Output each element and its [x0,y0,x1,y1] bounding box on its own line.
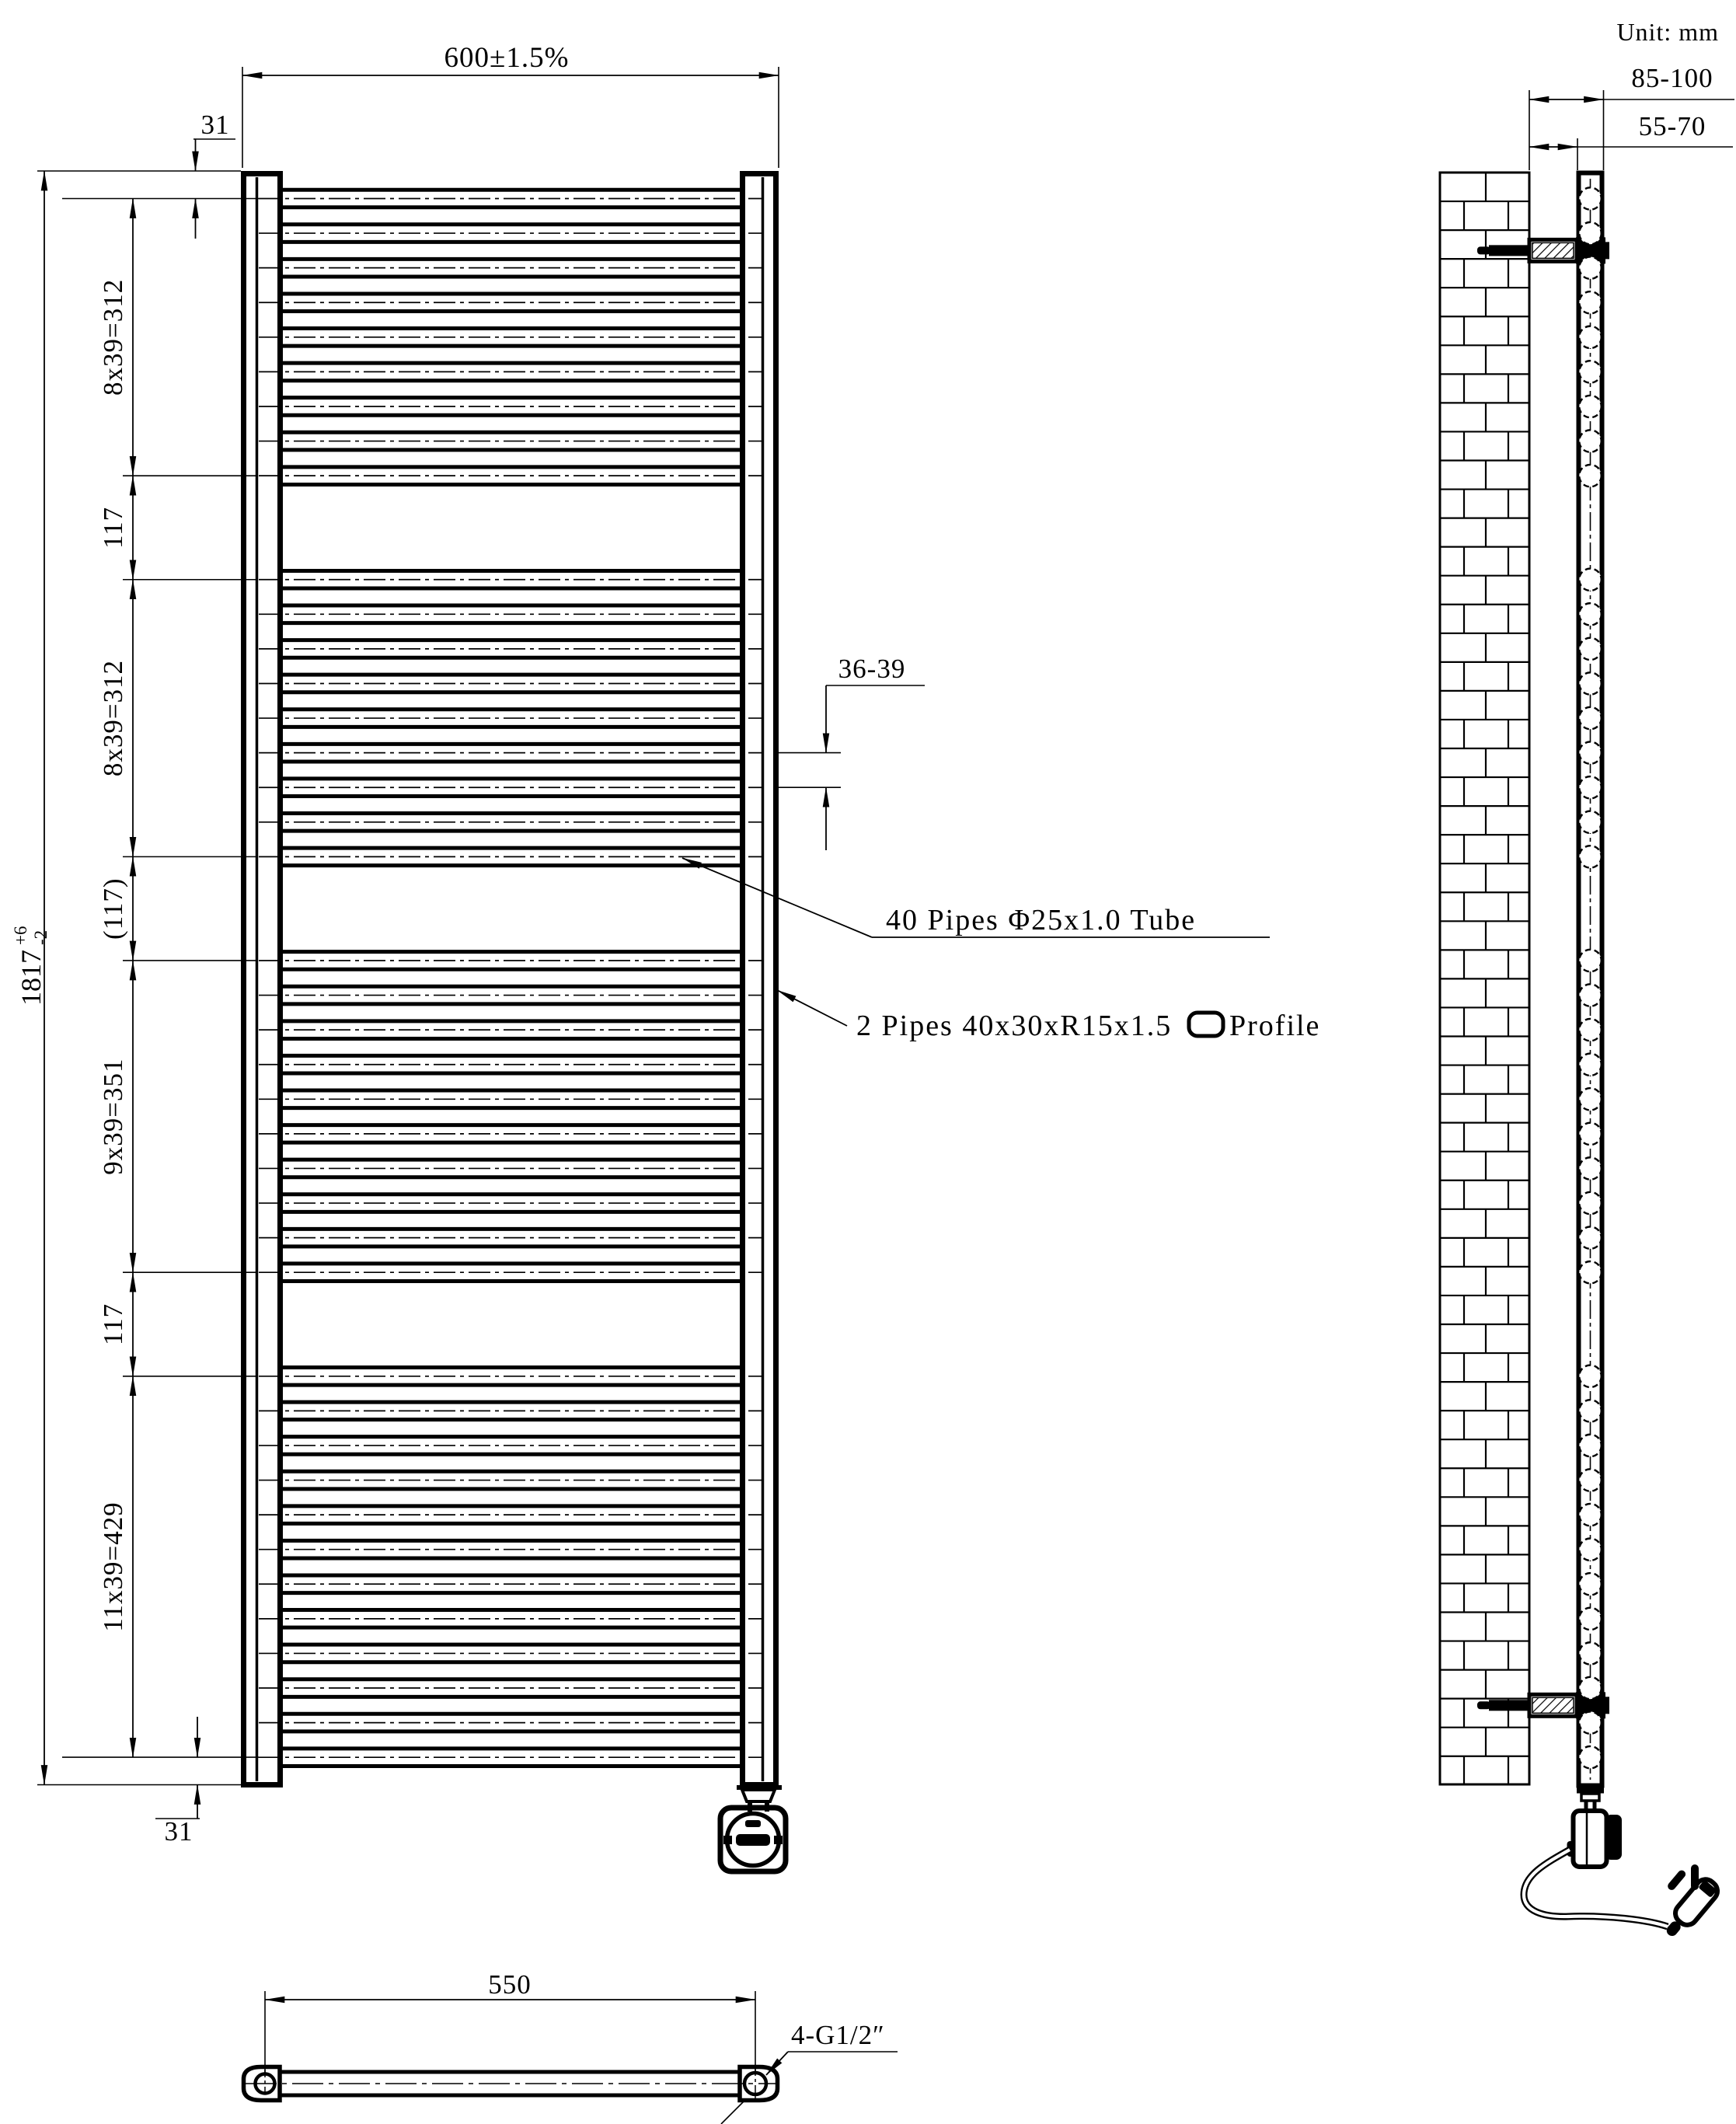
pipe-section-circle [1579,291,1601,313]
overall-height-sup: +6 [11,926,30,945]
tube-note-label: 40 Pipes Φ25x1.0 Tube [886,904,1196,936]
towel-radiator-technical-drawing: 600±1.5% 31 31 1817 +6 -2 [0,0,1736,2124]
power-plug [1661,1864,1722,1942]
wall-anchor [1489,245,1531,256]
hole-spacing-label: 550 [488,1969,532,2000]
pipe-section-circle [1579,1608,1601,1630]
pipe-section-circle [1579,1504,1601,1526]
heating-element-box [720,1787,786,1871]
chain-dim-label: 9x39=351 [98,1058,128,1174]
bottom-offset-label: 31 [165,1816,193,1847]
chain-dim-label: (117) [98,877,128,940]
side-view: 85-100 55-70 [1440,63,1734,1942]
chain-dim-label: 8x39=312 [98,279,128,396]
pipe-section-circle [1579,1123,1601,1145]
pipe-section-circle [1579,326,1601,348]
dim-pipe-pitch: 36-39 [777,654,925,850]
dim-wall-gap: 55-70 [1529,111,1733,170]
profile-note-label: 2 Pipes 40x30xR15x1.5 [856,1010,1172,1042]
socket-tab-left [723,1836,732,1844]
thread-annotation: 4-G1/2″ [721,2020,898,2124]
profile-shape-icon [1189,1013,1223,1036]
wall-gap-label: 55-70 [1639,111,1706,141]
pipe-section-circle [1579,1469,1601,1491]
bracket-screw-hatch [1532,242,1574,258]
chain-dim-label: 11x39=429 [98,1501,128,1631]
pipe-section-circle [1579,1157,1601,1179]
pipe-section-circle [1579,1539,1601,1561]
chain-dim-label: 117 [98,1303,128,1345]
dim-top-offset: 31 [37,110,259,239]
dim-hole-spacing: 550 [265,1969,755,2073]
bracket-screw-hatch [1532,1697,1574,1713]
pipe-section-circle [1579,430,1601,452]
pipe-section-circle [1579,1019,1601,1041]
socket-slot [736,1834,770,1846]
pipe-section-circle [1579,1746,1601,1768]
dim-bottom-offset: 31 [37,1717,259,1847]
pipe-section-circle [1579,638,1601,660]
pipe-section-circle [1579,1711,1601,1733]
pipe-section-circle [1579,396,1601,417]
pipe-section-circle [1579,1400,1601,1421]
profile-annotation: 2 Pipes 40x30xR15x1.5 Profile [777,990,1320,1042]
heater-body [1574,1811,1607,1867]
pipe-section-circle [1579,1435,1601,1456]
overall-height-label: 1817 [16,950,47,1006]
pipe-section-circle [1579,465,1601,487]
pipe-section-circle [1579,222,1601,244]
pitch-dim-label: 36-39 [838,654,906,684]
thread-label: 4-G1/2″ [791,2020,885,2050]
segment-dimension-chain: 8x39=3121178x39=312(117)9x39=35111711x39… [98,199,258,1758]
overall-height-sub: -2 [31,930,51,945]
pipe-section-circle [1579,1192,1601,1214]
anchor-tip [1477,246,1490,254]
heater-side-block [1605,1815,1622,1860]
pipe-section-circle [1579,672,1601,694]
pipe-section-circle [1579,776,1601,798]
pipe-section-circle [1579,1088,1601,1110]
pipe-section-circle [1579,187,1601,209]
socket-tab-right [774,1836,783,1844]
front-view: 600±1.5% 31 31 1817 +6 -2 [11,42,1320,1871]
pipe-section-circle [1579,361,1601,382]
socket-notch [745,1820,761,1827]
electric-heater-assembly [1524,1791,1721,1942]
pipe-section-circle [1579,741,1601,763]
wall-depth-label: 85-100 [1631,63,1713,93]
brick-pattern [1440,173,1529,1784]
unit-label: Unit: mm [1616,18,1719,46]
width-dim-label: 600±1.5% [444,42,570,74]
element-neck [742,1790,775,1801]
pipe-section-circle [1579,984,1601,1006]
dim-width-600: 600±1.5% [242,42,779,168]
heater-neck [1581,1794,1599,1801]
bottom-view: 550 4-G1/2″ [244,1969,898,2124]
pipe-section-circle [1579,950,1601,971]
anchor-tip [1477,1701,1490,1709]
pipe-section-circle [1579,1261,1601,1283]
dim-overall-height: 1817 +6 -2 [11,171,51,1785]
pipe-section-circle [1579,1365,1601,1387]
pipe-section-circle [1579,1677,1601,1699]
pipe-section-circle [1579,569,1601,591]
pipe-section-circle [1579,811,1601,833]
pipe-section-circle [1579,256,1601,278]
top-offset-label: 31 [201,110,230,140]
chain-dim-label: 8x39=312 [98,660,128,776]
pipe-rows [259,190,762,1766]
pipe-section-circle [1579,1054,1601,1076]
profile-note-suffix-label: Profile [1229,1010,1320,1042]
pipe-section-circle [1579,1573,1601,1595]
pipe-section-circle [1579,603,1601,625]
wall-anchor [1489,1700,1531,1711]
pipe-section-circle [1579,1226,1601,1248]
pipe-section-circle [1579,1642,1601,1664]
pipe-section-circle [1579,846,1601,867]
drawing-page: 600±1.5% 31 31 1817 +6 -2 [0,0,1736,2124]
left-rail-profile [244,174,281,1785]
chain-dim-label: 117 [98,507,128,549]
plug-pin-angled [1666,1869,1687,1892]
right-rail-profile [743,174,776,1785]
tube-annotation: 40 Pipes Φ25x1.0 Tube [682,858,1270,937]
pipe-section-circle [1579,707,1601,729]
